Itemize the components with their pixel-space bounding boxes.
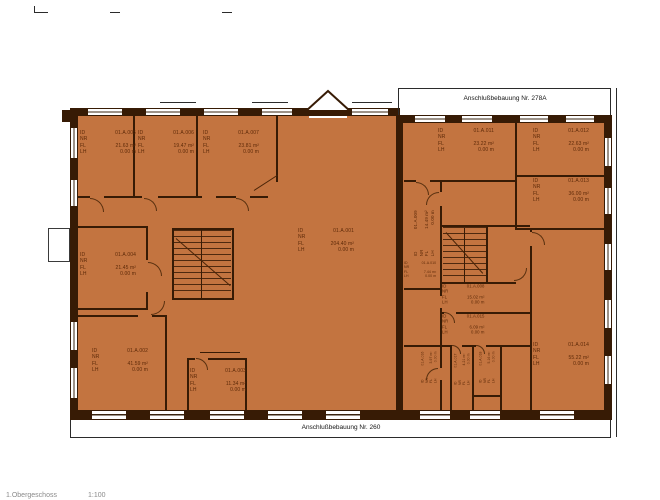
room-field-value: 0.00 m xyxy=(449,147,494,153)
window xyxy=(88,109,122,115)
window xyxy=(262,109,292,115)
window xyxy=(605,188,611,214)
room-label: ID01.A.003NRFL11.34 m²LH0.00 m xyxy=(190,368,246,393)
window xyxy=(326,411,360,419)
room-field-value: 0.00 m xyxy=(412,274,437,278)
wall xyxy=(62,110,70,122)
room-field-key: LH xyxy=(433,375,437,383)
room-field-key: LH xyxy=(430,245,436,256)
window xyxy=(204,109,238,115)
window xyxy=(605,244,611,270)
wall xyxy=(172,298,234,300)
room-field-value: 0.00 m xyxy=(544,147,589,153)
room-field-value: 0.00 m xyxy=(103,367,148,373)
wall xyxy=(133,116,135,198)
room-label: ID01.A.012NRFL22.63 m²LH0.00 m xyxy=(533,128,589,153)
room-label-row: LH0.00 m xyxy=(203,149,259,155)
corner-note-scale: 1:100 xyxy=(88,492,106,499)
room-field-key: LH xyxy=(404,274,412,278)
wall xyxy=(515,228,604,230)
room-label-row: LH0.00 m xyxy=(80,149,136,155)
wall xyxy=(440,182,442,192)
wall xyxy=(152,315,167,317)
outline-line xyxy=(160,102,196,103)
room-field-value: 0.00 m xyxy=(451,300,484,305)
room-field-value: 0.00 m xyxy=(201,387,246,393)
wall xyxy=(232,228,234,300)
corner-note-storey: 1.Obergeschoss xyxy=(6,492,57,499)
room-label-row: LH0.00 m xyxy=(298,247,354,253)
wall xyxy=(146,226,148,260)
window xyxy=(150,411,184,419)
room-label-row: LH0.00 m xyxy=(404,274,436,278)
room-field-value: 0.00 m xyxy=(149,149,194,155)
room-field-value: 0.00 m xyxy=(214,149,259,155)
window xyxy=(605,138,611,166)
room-label: ID01.A.006NRFL19.47 m²LH0.00 m xyxy=(138,130,194,155)
wall xyxy=(450,347,452,412)
room-field-value: 0.00 m xyxy=(491,352,495,375)
room-field-key: LH xyxy=(138,149,149,155)
outline-line xyxy=(616,88,617,437)
room-field-key: LH xyxy=(466,377,470,385)
room-label-row: LH0.00 m xyxy=(533,361,589,367)
balcony-outline xyxy=(48,228,70,262)
room-label: ID01.A.005NRFL21.63 m²LH0.00 m xyxy=(80,130,136,155)
wall xyxy=(472,347,474,412)
room-field-value: 0.00 m xyxy=(466,354,470,377)
window xyxy=(71,128,77,158)
window xyxy=(268,411,302,419)
room-label-row: LH0.00 m xyxy=(533,147,589,153)
wall xyxy=(440,380,442,412)
window xyxy=(540,411,574,419)
wall xyxy=(146,292,148,310)
room-field-key: LH xyxy=(442,330,451,335)
room-label-row: LH0.00 m xyxy=(190,387,246,393)
wall xyxy=(404,288,440,290)
room-field-value: 0.00 m xyxy=(544,361,589,367)
wall xyxy=(250,196,268,198)
wall xyxy=(187,358,189,412)
outline-line xyxy=(70,437,611,438)
room-label-row: LH0.00 m xyxy=(430,210,436,256)
wall xyxy=(208,358,247,360)
wall xyxy=(276,116,278,182)
wall xyxy=(78,308,148,310)
room-field-key: LH xyxy=(533,361,544,367)
room-label: ID01.A.010NRFL7.44 m²LH0.00 m xyxy=(404,261,436,279)
room-field-key: LH xyxy=(80,149,91,155)
wall xyxy=(200,352,240,353)
room-label: ID01.A.014NRFL55.22 m²LH0.00 m xyxy=(533,342,589,367)
wall xyxy=(500,347,502,412)
outline-line xyxy=(352,102,392,103)
room-label-row: LH0.00 m xyxy=(92,367,148,373)
room-field-value: 0.00 m xyxy=(91,149,136,155)
room-field-key: LH xyxy=(80,271,91,277)
window xyxy=(352,109,388,115)
wall xyxy=(440,206,442,296)
room-label: ID01.A.018NRFL5.16 m²LH0.00 m xyxy=(479,352,496,384)
bay-window xyxy=(303,88,353,114)
annotation-top: Anschlußbebauung Nr. 278A xyxy=(398,95,612,102)
room-label: ID01.A.009NRFL14.49 m²LH0.00 m xyxy=(413,210,436,256)
room-label-row: LH0.00 m xyxy=(442,300,485,305)
window xyxy=(605,356,611,384)
wall xyxy=(404,345,452,347)
wall xyxy=(515,123,517,228)
window xyxy=(605,300,611,328)
window xyxy=(520,116,548,122)
outline-line xyxy=(398,88,610,89)
wall xyxy=(486,227,488,282)
wall xyxy=(78,315,138,317)
wall xyxy=(104,196,142,198)
window xyxy=(71,180,77,206)
room-label: ID01.A.015NRFL6.09 m²LH0.00 m xyxy=(442,314,485,335)
room-label: ID01.A.016NRFL3.97 m²LH0.00 m xyxy=(421,352,438,384)
room-field-key: LH xyxy=(298,247,309,253)
room-field-key: LH xyxy=(203,149,214,155)
window xyxy=(71,368,77,398)
room-field-value: 0.00 m xyxy=(433,352,437,375)
window xyxy=(92,411,126,419)
window xyxy=(210,411,244,419)
window xyxy=(566,116,594,122)
window xyxy=(470,411,500,419)
wall xyxy=(404,180,416,182)
room-field-key: LH xyxy=(92,367,103,373)
room-label: ID01.A.002NRFL41.59 m²LH0.00 m xyxy=(92,348,148,373)
room-label-row: LH0.00 m xyxy=(433,352,437,384)
room-field-key: LH xyxy=(190,387,201,393)
room-label: ID01.A.011NRFL23.22 m²LH0.00 m xyxy=(438,128,494,153)
wall xyxy=(165,315,167,412)
room-label: ID01.A.008NRFL15.02 m²LH0.00 m xyxy=(442,284,485,305)
outline-line xyxy=(222,12,232,13)
window xyxy=(146,109,180,115)
room-label-row: LH0.00 m xyxy=(80,271,136,277)
window xyxy=(420,411,450,419)
wall xyxy=(517,175,604,177)
wall xyxy=(462,345,476,347)
floor-plan-canvas: Anschlußbebauung Nr. 278A Anschlußbebauu… xyxy=(0,0,660,500)
room-field-value: 0.00 m xyxy=(91,271,136,277)
room-label-row: LH0.00 m xyxy=(533,197,589,203)
window xyxy=(71,322,77,350)
outline-line xyxy=(110,12,120,13)
wall xyxy=(78,196,90,198)
room-label-row: LH0.00 m xyxy=(491,352,495,384)
room-label-row: LH0.00 m xyxy=(438,147,494,153)
wall xyxy=(486,345,530,347)
room-field-value: 0.00 m xyxy=(451,330,484,335)
wall xyxy=(396,116,403,412)
room-label: ID01.A.013NRFL36.00 m²LH0.00 m xyxy=(533,178,589,203)
wall xyxy=(430,180,515,182)
room-field-key: LH xyxy=(442,300,451,305)
wall xyxy=(474,395,500,397)
room-field-value: 0.00 m xyxy=(309,247,354,253)
room-field-key: LH xyxy=(533,197,544,203)
room-label: ID01.A.004NRFL21.45 m²LH0.00 m xyxy=(80,252,136,277)
room-label: ID01.A.017NRFL4.21 m²LH0.00 m xyxy=(454,354,471,386)
room-field-key: LH xyxy=(533,147,544,153)
room-field-key: LH xyxy=(491,375,495,383)
window xyxy=(415,116,445,122)
room-label: ID01.A.007NRFL23.81 m²LH0.00 m xyxy=(203,130,259,155)
wall xyxy=(216,196,236,198)
room-label-row: LH0.00 m xyxy=(138,149,194,155)
annotation-bottom: Anschlußbebauung Nr. 260 xyxy=(70,424,612,431)
room-field-value: 0.00 m xyxy=(430,210,436,245)
room-label-row: LH0.00 m xyxy=(442,330,485,335)
room-field-value: 0.00 m xyxy=(544,197,589,203)
outline-line xyxy=(34,12,48,13)
wall xyxy=(78,226,148,228)
room-label: ID01.A.001NRFL204.40 m²LH0.00 m xyxy=(298,228,354,253)
room-label-row: LH0.00 m xyxy=(466,354,470,386)
wall xyxy=(530,246,532,412)
window xyxy=(462,116,492,122)
room-field-key: LH xyxy=(438,147,449,153)
outline-line xyxy=(252,102,288,103)
wall xyxy=(196,116,198,198)
